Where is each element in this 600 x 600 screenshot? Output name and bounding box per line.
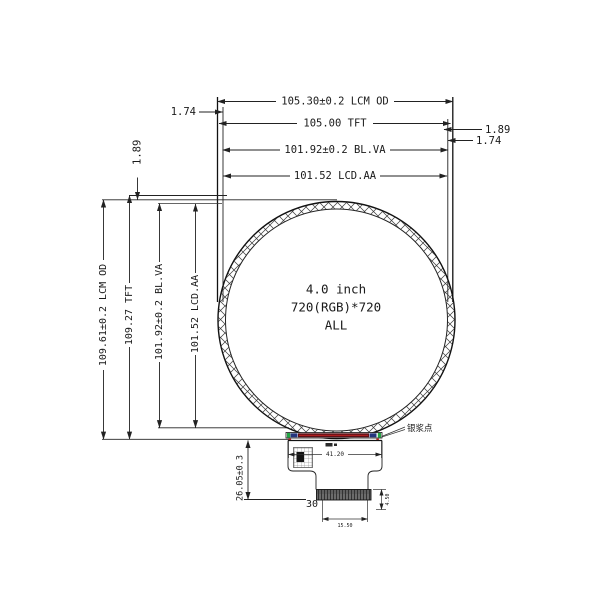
lcd-drawing-canvas: 4.0 inch 720(RGB)*720 ALL 105.30±0.2 LCM… — [0, 0, 600, 600]
dim-offset-174-left-text: 1.74 — [171, 106, 196, 118]
strip-green-cap-left — [287, 433, 290, 438]
silver-paste-label-text: 银浆点 — [407, 423, 433, 434]
dim-stiffener-height-text: 4.50 — [385, 493, 391, 505]
dim-fpc-width-text: 41.20 — [326, 451, 344, 458]
dim-lcm-od-width-text: 105.30±0.2 LCM OD — [281, 96, 388, 108]
fpc-tiny-print-mark — [326, 443, 333, 447]
fpc-component-dark — [297, 452, 305, 462]
dim-tft-width-text: 105.00 TFT — [303, 118, 367, 130]
dim-top-lcd-aa: 101.52 LCD.AA — [224, 170, 448, 182]
dim-lcm-od-height-text: 109.61±0.2 LCM OD — [98, 264, 109, 366]
dim-offset-174-right-text: 1.74 — [476, 135, 501, 147]
panel-mode-text: ALL — [325, 318, 348, 333]
dim-tail-length: 26.05±0.3 — [236, 441, 249, 502]
lcd-module-drawing-page: 4.0 inch 720(RGB)*720 ALL 105.30±0.2 LCM… — [0, 0, 600, 600]
dim-top-lcm-od: 105.30±0.2 LCM OD — [218, 96, 454, 108]
dim-left-bl-va: 101.92±0.2 BL.VA — [154, 204, 165, 428]
dim-top-tft: 105.00 TFT — [219, 118, 451, 130]
panel-size-text: 4.0 inch — [306, 282, 366, 297]
dim-blva-height-text: 101.92±0.2 BL.VA — [154, 264, 165, 360]
dim-tab-width-text: 15.50 — [337, 523, 352, 529]
dim-top-bl-va: 101.92±0.2 BL.VA — [223, 144, 449, 156]
dim-lcdaa-height-text: 101.52 LCD.AA — [190, 275, 201, 353]
fpc-tiny-print-mark-2 — [334, 444, 337, 447]
strip-center-trace — [299, 435, 368, 436]
dim-left-tft: 109.27 TFT — [124, 196, 135, 440]
panel-spec-label: 4.0 inch 720(RGB)*720 ALL — [291, 282, 381, 333]
strip-navy-block-left — [291, 433, 298, 437]
strip-green-cap-right — [378, 433, 381, 438]
dim-gap-top-left-vertical: 1.89 — [132, 140, 144, 200]
dim-blva-width-text: 101.92±0.2 BL.VA — [284, 144, 386, 156]
dim-gap-189-text: 1.89 — [132, 140, 144, 165]
fpc-stiffener — [317, 490, 372, 501]
dim-tail-length-text: 26.05±0.3 — [236, 455, 246, 501]
dim-offset-top-right-2: 1.74 — [448, 135, 501, 147]
dim-tft-height-text: 109.27 TFT — [124, 285, 135, 345]
fpc-tail — [288, 441, 382, 501]
strip-navy-block-right — [370, 433, 377, 437]
dim-tab-width: 15.50 — [323, 501, 368, 530]
pin-count-text: 30 — [306, 499, 318, 510]
dim-left-lcm-od: 109.61±0.2 LCM OD — [98, 200, 109, 439]
dim-left-lcd-aa: 101.52 LCD.AA — [190, 204, 201, 428]
panel-resolution-text: 720(RGB)*720 — [291, 300, 381, 315]
dim-lcdaa-width-text: 101.52 LCD.AA — [294, 170, 377, 182]
dim-offset-top-left: 1.74 — [171, 106, 223, 118]
dim-stiffener-height: 4.50 — [373, 490, 391, 510]
